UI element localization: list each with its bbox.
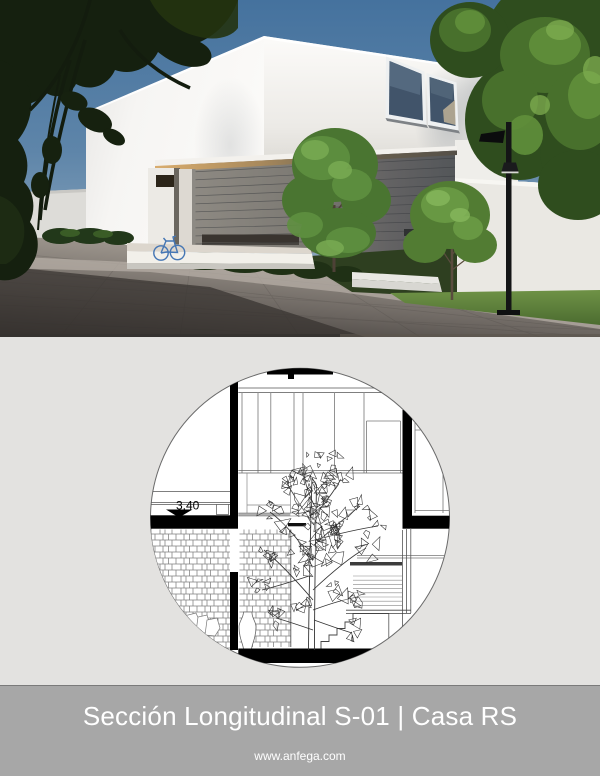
svg-text:3.40: 3.40 [176, 499, 200, 513]
